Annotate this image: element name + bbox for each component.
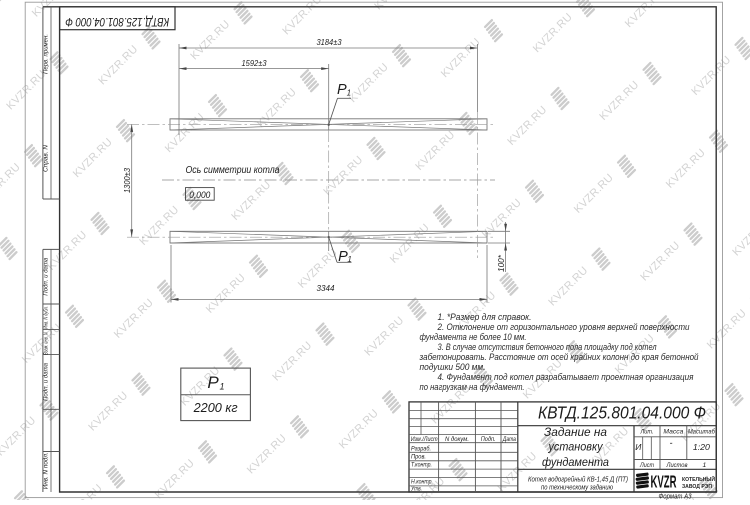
svg-text:2200 кг: 2200 кг — [193, 401, 238, 415]
svg-text:И: И — [635, 442, 642, 452]
svg-text:3344: 3344 — [317, 284, 336, 293]
svg-text:Лист: Лист — [639, 462, 654, 469]
svg-text:Инв. N дубл.: Инв. N дубл. — [44, 306, 50, 329]
svg-text:Подп.: Подп. — [481, 437, 496, 443]
svg-text:2. Отклонение от горизонтально: 2. Отклонение от горизонтального уровня … — [437, 322, 690, 332]
svg-text:Инв. N подл.: Инв. N подл. — [43, 452, 50, 489]
svg-text:Утв.: Утв. — [410, 487, 422, 493]
svg-text:Формат А3: Формат А3 — [659, 491, 692, 500]
svg-text:КВТД.125.801.04.000 Ф: КВТД.125.801.04.000 Ф — [65, 15, 169, 29]
svg-text:КВТД.125.801.04.000 Ф: КВТД.125.801.04.000 Ф — [538, 402, 706, 422]
svg-text:3. В случае отсутствия бетонно: 3. В случае отсутствия бетонного пола пл… — [438, 342, 657, 352]
svg-text:4. Фундамент под котел разраба: 4. Фундамент под котел разрабатывает про… — [438, 372, 694, 382]
svg-text:Ось симметрии котла: Ось симметрии котла — [186, 165, 280, 176]
svg-text:Н.контр.: Н.контр. — [411, 479, 433, 485]
svg-text:Подп. и дата: Подп. и дата — [42, 363, 50, 401]
svg-text:1: 1 — [347, 88, 351, 97]
svg-text:1. *Размер для справок.: 1. *Размер для справок. — [438, 312, 532, 322]
svg-text:ЗАВОД РЭП: ЗАВОД РЭП — [682, 484, 712, 490]
svg-text:-: - — [670, 438, 673, 448]
svg-text:Подп. и дата: Подп. и дата — [42, 257, 50, 295]
svg-text:фундамента не более 10 мм.: фундамента не более 10 мм. — [420, 332, 527, 342]
svg-text:1: 1 — [219, 382, 224, 392]
svg-text:P: P — [207, 373, 219, 392]
svg-text:P: P — [337, 82, 347, 98]
svg-text:0,000: 0,000 — [189, 190, 211, 201]
svg-text:1:20: 1:20 — [693, 442, 710, 452]
svg-text:установку: установку — [548, 442, 604, 454]
svg-text:3184±3: 3184±3 — [317, 38, 343, 47]
svg-text:Пров.: Пров. — [411, 454, 426, 460]
svg-text:Масса: Масса — [663, 429, 683, 436]
svg-text:1300±3: 1300±3 — [123, 167, 132, 193]
svg-text:по техническому заданию: по техническому заданию — [541, 482, 613, 491]
svg-text:KVZR: KVZR — [651, 471, 677, 491]
svg-text:Перв. примен.: Перв. примен. — [43, 34, 50, 74]
svg-text:Задание на: Задание на — [544, 427, 607, 439]
svg-text:Листов: Листов — [666, 462, 688, 469]
svg-text:Масштаб: Масштаб — [688, 428, 715, 436]
svg-text:фундамента: фундамента — [542, 457, 609, 469]
svg-text:КОТЕЛЬНЫЙ: КОТЕЛЬНЫЙ — [682, 475, 715, 483]
svg-text:1: 1 — [347, 255, 351, 264]
svg-text:Т.контр.: Т.контр. — [411, 462, 432, 468]
svg-text:1592±3: 1592±3 — [242, 59, 268, 68]
svg-text:подушки 500 мм.: подушки 500 мм. — [420, 362, 486, 372]
svg-text:Изм./Лист: Изм./Лист — [411, 437, 438, 443]
svg-text:Справ. N: Справ. N — [43, 144, 50, 172]
svg-text:забетонировать. Расстояние от: забетонировать. Расстояние от осей крайн… — [419, 352, 699, 362]
svg-text:100*: 100* — [497, 254, 506, 272]
svg-text:Лит.: Лит. — [640, 429, 654, 436]
svg-text:1: 1 — [703, 462, 707, 469]
svg-text:Разраб.: Разраб. — [411, 446, 431, 452]
svg-text:по нагрузкам на фундамент.: по нагрузкам на фундамент. — [420, 382, 525, 392]
svg-text:Дата: Дата — [502, 437, 516, 443]
svg-text:N докум.: N докум. — [445, 437, 469, 443]
svg-text:Взам. инв. N: Взам. инв. N — [44, 332, 50, 355]
